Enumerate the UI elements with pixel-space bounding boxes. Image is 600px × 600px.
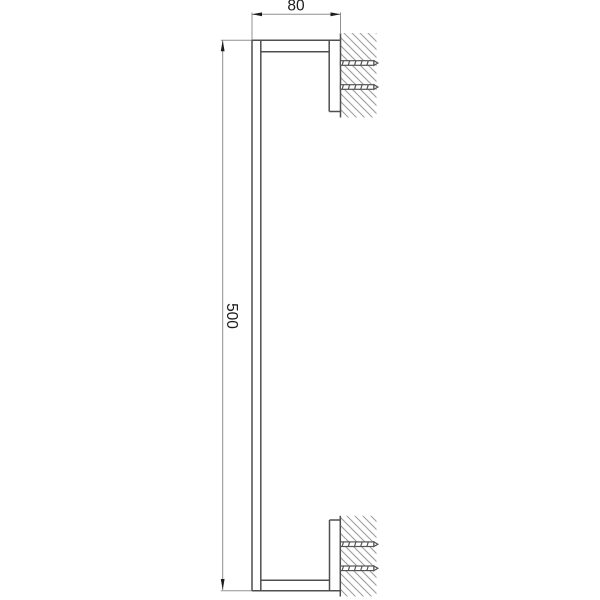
svg-text:500: 500 (223, 303, 240, 329)
svg-text:80: 80 (287, 0, 305, 15)
